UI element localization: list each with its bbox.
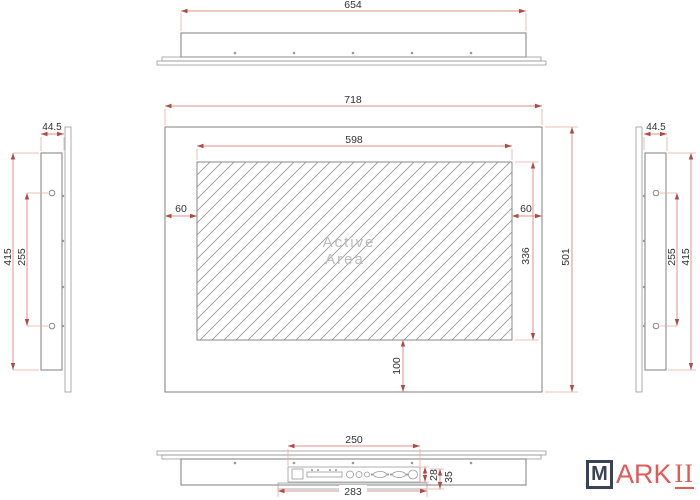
active-area-label-line1: Active — [323, 234, 376, 251]
dim-bottom-io-height: 28 — [428, 469, 440, 481]
logo-text-serif: II — [675, 461, 694, 489]
left-side-view: 44.5 415 255 — [2, 122, 71, 392]
screw-dot — [470, 52, 473, 55]
screw-dot — [234, 52, 237, 55]
front-view: Active Area 718 598 60 60 336 501 100 — [165, 94, 578, 392]
mount-hole — [653, 323, 659, 329]
screw-dot — [352, 52, 355, 55]
top-view: 654 — [157, 0, 546, 65]
screw-dot — [411, 52, 414, 55]
power-connector — [292, 469, 303, 479]
logo-initial: M — [591, 463, 608, 485]
dim-left-depth: 44.5 — [42, 122, 62, 133]
dsub-connector — [374, 472, 387, 478]
dim-bottom-mount-width: 283 — [344, 486, 362, 498]
mount-hole — [653, 190, 659, 196]
round-connector — [347, 471, 354, 478]
logo-m-box: M — [586, 460, 613, 489]
dim-right-hole-spacing: 255 — [666, 248, 678, 266]
round-connector — [356, 472, 362, 478]
dim-left-hole-spacing: 255 — [16, 248, 28, 266]
dim-right-height: 415 — [680, 248, 692, 266]
terminal-slot — [307, 472, 342, 477]
round-connector — [365, 472, 370, 477]
dim-right-depth: 44.5 — [646, 122, 666, 133]
brand-logo: M ARK II — [586, 460, 694, 489]
dim-bottom-total-height: 35 — [443, 471, 455, 483]
dim-front-margin-right: 60 — [520, 203, 532, 215]
round-connector — [409, 470, 418, 479]
io-panel — [288, 467, 420, 482]
dim-top-width: 654 — [344, 0, 362, 11]
logo-text-sans: ARK — [616, 461, 672, 488]
mount-hole — [49, 323, 55, 329]
dim-front-outer-width: 718 — [344, 94, 362, 106]
screw-dot — [293, 52, 296, 55]
dim-front-active-height: 336 — [520, 247, 532, 265]
active-area-label-line2: Area — [325, 251, 365, 268]
dim-front-margin-left: 60 — [175, 203, 187, 215]
dim-left-height: 415 — [2, 248, 14, 266]
dsub-connector — [393, 472, 406, 478]
mount-hole — [49, 190, 55, 196]
dim-bottom-io-width: 250 — [345, 434, 363, 446]
bottom-view: 250 283 28 35 — [157, 434, 546, 498]
dim-front-active-width: 598 — [345, 134, 363, 146]
dim-front-margin-bottom: 100 — [391, 357, 403, 375]
right-side-view: 44.5 255 415 — [636, 122, 696, 392]
dim-front-outer-height: 501 — [560, 248, 572, 266]
technical-drawing: 654 Active Area 718 598 60 60 336 — [0, 0, 700, 500]
